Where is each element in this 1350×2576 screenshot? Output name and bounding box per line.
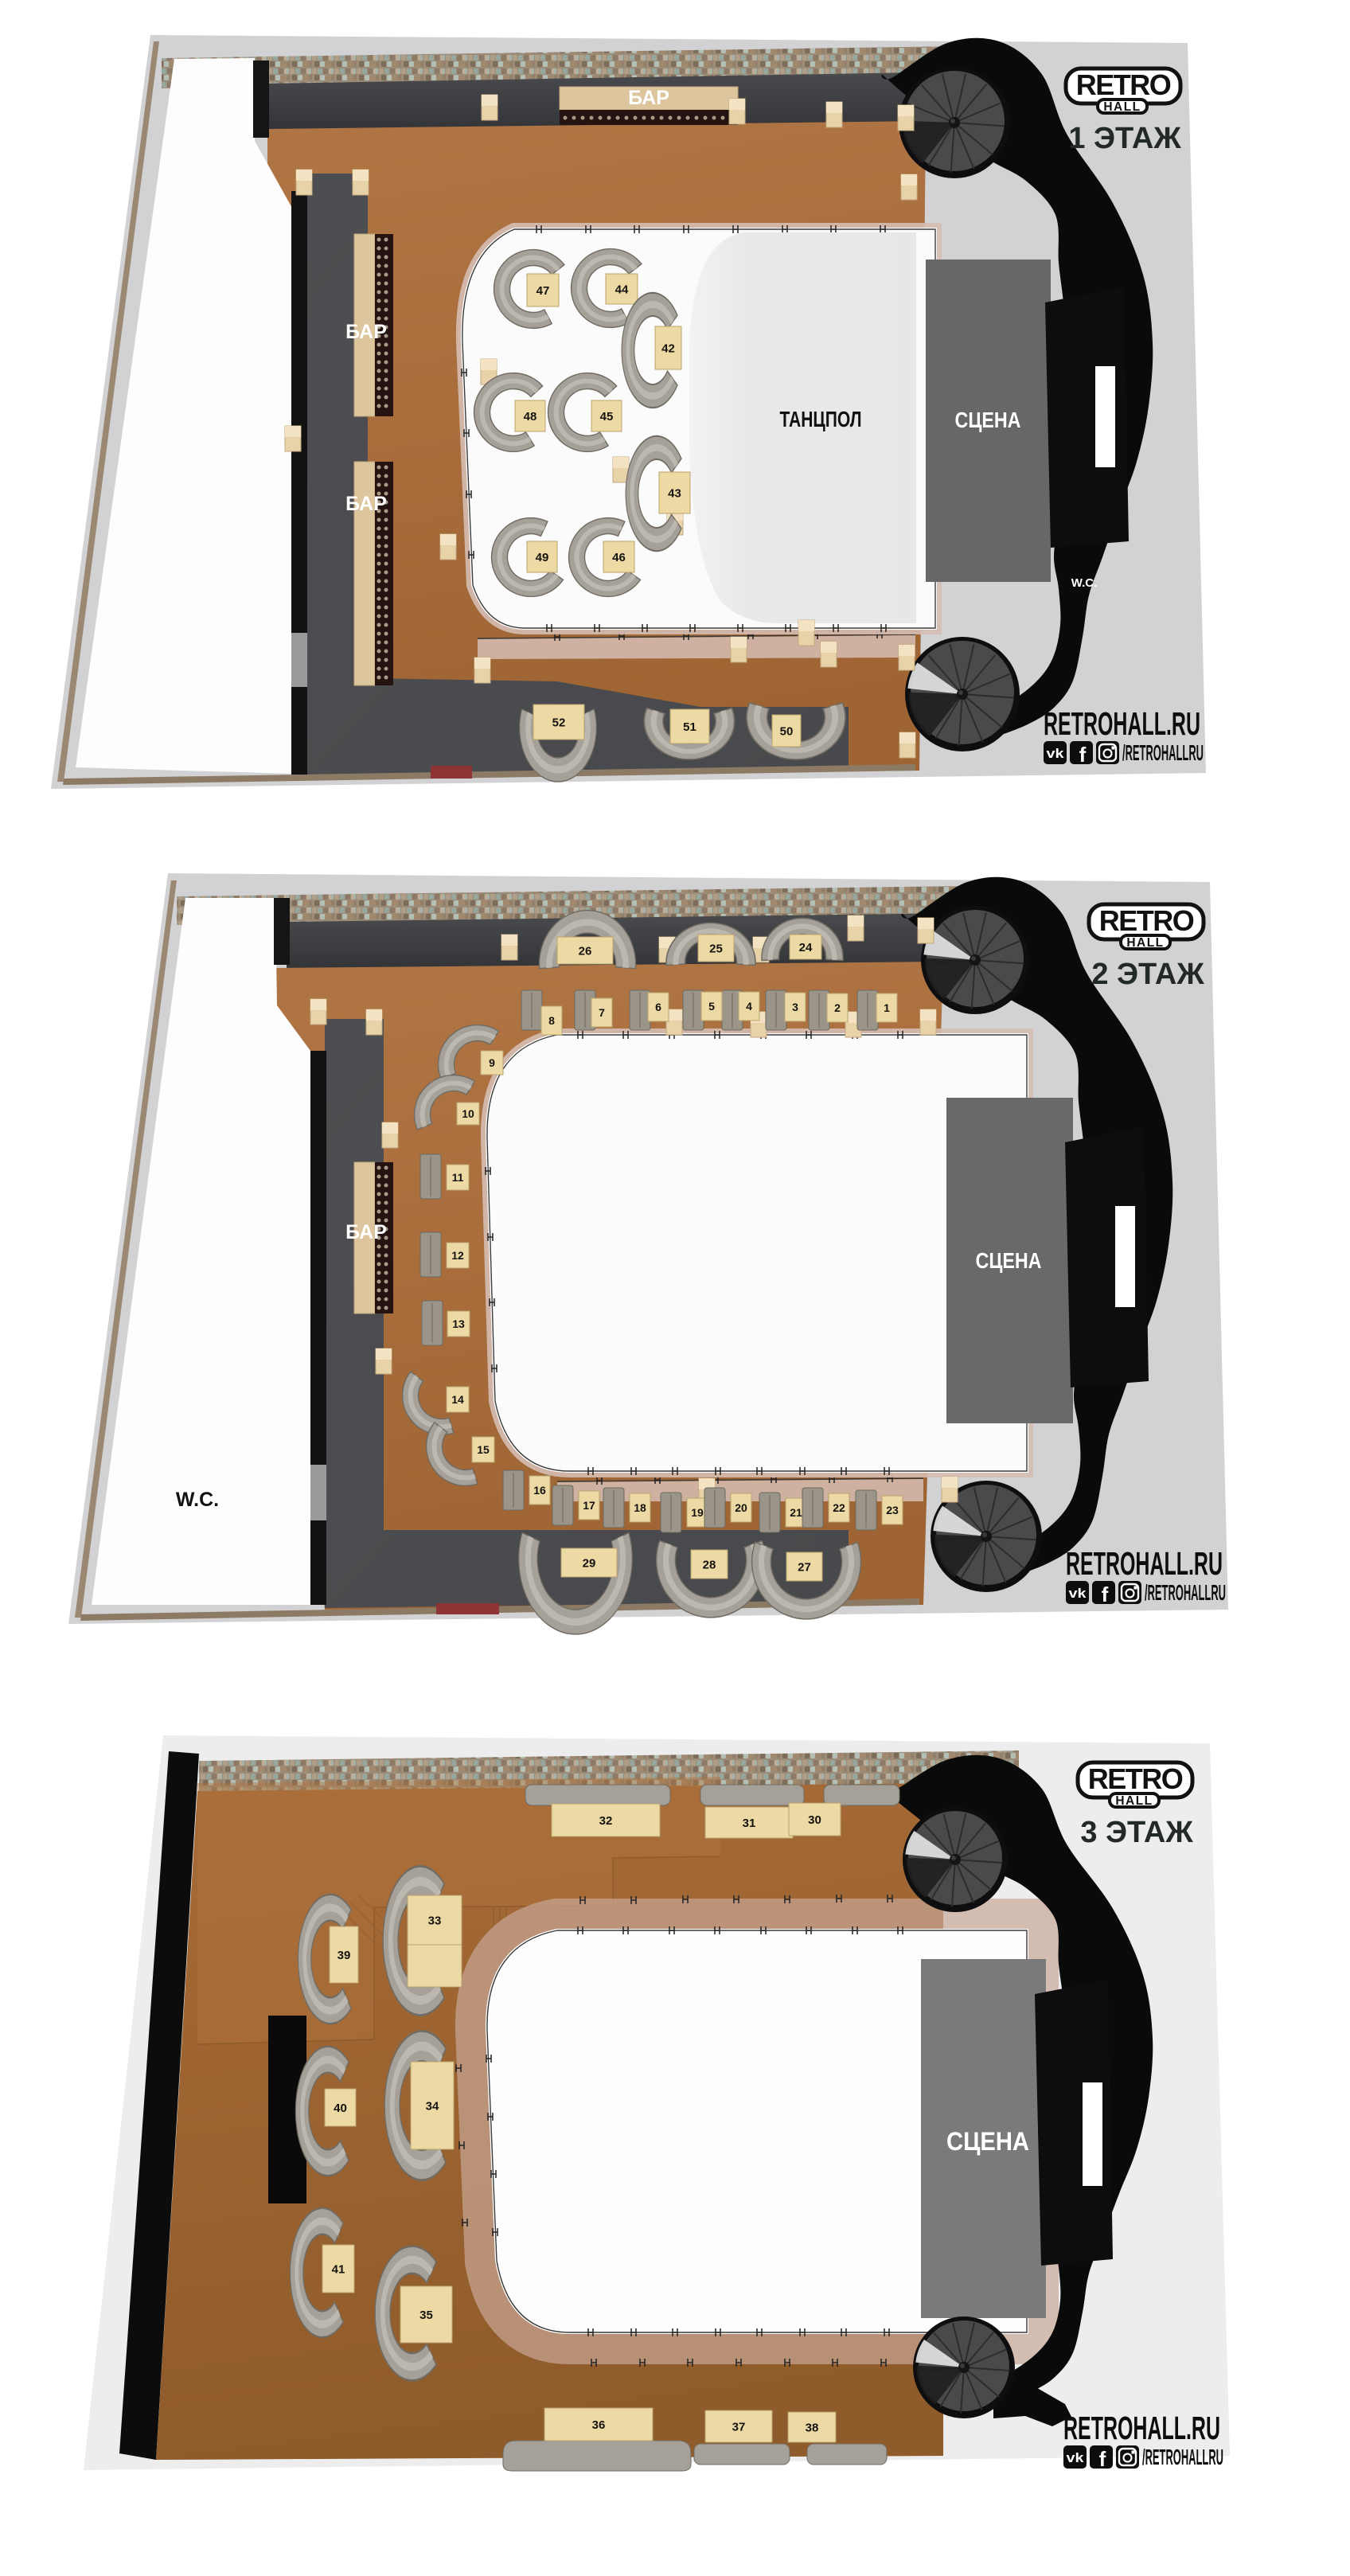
svg-text:4: 4 [746,1000,752,1013]
svg-text:БАР: БАР [628,87,669,109]
svg-text:40: 40 [334,2102,347,2115]
svg-text:34: 34 [426,2099,439,2113]
svg-text:31: 31 [743,1817,756,1830]
svg-text:33: 33 [428,1914,442,1927]
svg-text:f: f [1099,2447,1106,2471]
svg-text:/RETROHALLRU: /RETROHALLRU [1142,2445,1223,2469]
svg-text:18: 18 [634,1501,646,1514]
svg-text:HALL: HALL [1126,936,1164,950]
svg-text:35: 35 [419,2309,433,2322]
svg-text:RETRO: RETRO [1088,1762,1183,1795]
svg-text:RETROHALL.RU: RETROHALL.RU [1044,705,1200,742]
svg-text:HALL: HALL [1115,1794,1153,1808]
svg-text:13: 13 [452,1317,465,1330]
svg-text:45: 45 [600,410,614,423]
svg-text:46: 46 [612,551,626,564]
svg-text:ТАНЦПОЛ: ТАНЦПОЛ [780,407,862,431]
svg-text:RETRO: RETRO [1099,904,1194,937]
svg-text:2: 2 [834,1001,841,1014]
svg-text:16: 16 [533,1484,546,1497]
svg-text:22: 22 [833,1501,845,1514]
svg-text:12: 12 [451,1249,464,1262]
svg-text:39: 39 [337,1949,351,1962]
svg-text:17: 17 [583,1499,595,1512]
svg-text:21: 21 [790,1506,802,1519]
svg-text:11: 11 [452,1171,464,1184]
svg-text:28: 28 [703,1558,716,1571]
svg-text:10: 10 [462,1107,474,1120]
svg-text:6: 6 [655,1001,661,1013]
svg-text:HALL: HALL [1103,100,1141,114]
svg-text:37: 37 [732,2420,746,2434]
svg-text:50: 50 [780,724,794,738]
svg-text:29: 29 [583,1556,596,1570]
svg-text:44: 44 [615,283,629,296]
svg-text:24: 24 [799,941,813,954]
svg-text:15: 15 [477,1443,490,1456]
svg-text:51: 51 [683,720,696,734]
svg-text:23: 23 [886,1504,899,1516]
svg-text:20: 20 [735,1501,747,1514]
svg-text:27: 27 [798,1560,811,1574]
svg-text:41: 41 [332,2262,345,2276]
svg-text:5: 5 [708,1000,715,1013]
svg-text:RETRO: RETRO [1076,68,1171,101]
svg-text:7: 7 [599,1006,605,1019]
svg-text:1 ЭТАЖ: 1 ЭТАЖ [1068,122,1181,155]
svg-text:vk: vk [1067,2450,1085,2465]
svg-text:2 ЭТАЖ: 2 ЭТАЖ [1091,958,1204,991]
svg-text:БАР: БАР [345,493,387,515]
svg-text:36: 36 [592,2418,606,2432]
svg-text:vk: vk [1047,746,1065,761]
svg-text:9: 9 [489,1056,495,1069]
svg-text:f: f [1079,743,1087,767]
svg-text:RETROHALL.RU: RETROHALL.RU [1066,1545,1223,1582]
svg-text:3 ЭТАЖ: 3 ЭТАЖ [1080,1816,1193,1849]
svg-text:СЦЕНА: СЦЕНА [976,1248,1042,1273]
svg-text:30: 30 [808,1813,821,1827]
svg-text:8: 8 [548,1014,555,1027]
svg-text:26: 26 [579,944,592,958]
svg-text:/RETROHALLRU: /RETROHALLRU [1122,740,1204,765]
svg-text:W.C.: W.C. [1071,576,1098,590]
svg-text:СЦЕНА: СЦЕНА [955,408,1021,432]
svg-text:СЦЕНА: СЦЕНА [946,2127,1029,2156]
svg-text:3: 3 [792,1001,798,1013]
svg-text:43: 43 [668,486,681,500]
svg-text:49: 49 [536,551,549,564]
svg-text:f: f [1102,1583,1109,1606]
svg-text:RETROHALL.RU: RETROHALL.RU [1063,2410,1220,2446]
svg-text:vk: vk [1069,1586,1087,1601]
svg-text:52: 52 [552,716,566,729]
svg-text:32: 32 [599,1814,613,1828]
svg-text:25: 25 [709,942,723,955]
svg-text:47: 47 [536,284,550,298]
svg-text:48: 48 [524,410,537,423]
svg-text:42: 42 [661,342,675,355]
svg-text:/RETROHALLRU: /RETROHALLRU [1145,1580,1226,1605]
svg-text:14: 14 [451,1393,464,1406]
svg-text:БАР: БАР [345,321,387,343]
svg-text:38: 38 [806,2421,819,2434]
svg-text:19: 19 [691,1506,704,1519]
svg-text:1: 1 [884,1001,890,1014]
svg-text:W.C.: W.C. [176,1489,219,1511]
svg-text:БАР: БАР [345,1221,387,1243]
